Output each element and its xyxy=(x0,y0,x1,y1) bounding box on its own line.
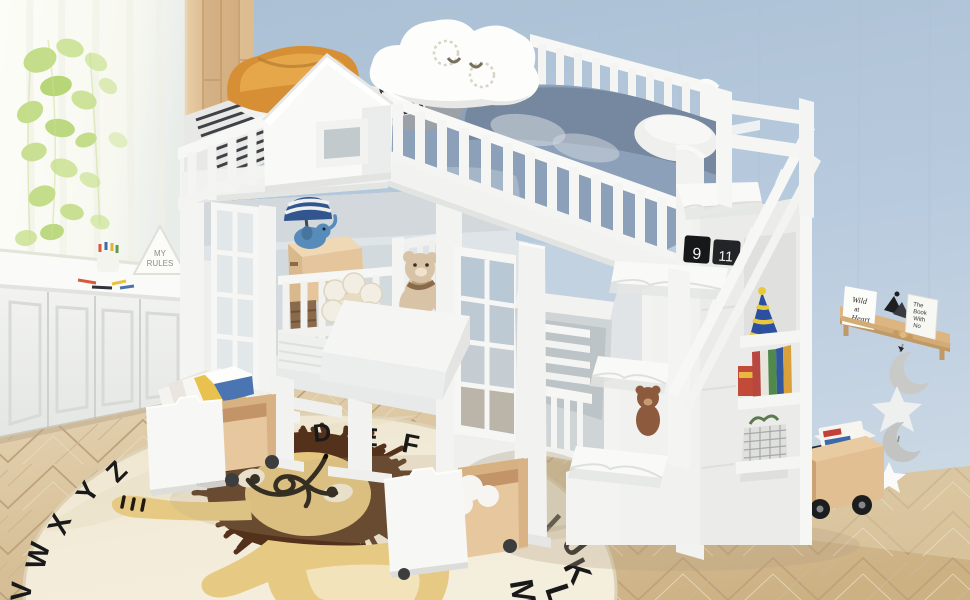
svg-text:No: No xyxy=(913,323,922,330)
svg-text:11: 11 xyxy=(718,248,734,265)
svg-text:V: V xyxy=(5,580,38,600)
svg-text:D: D xyxy=(312,418,333,448)
svg-text:MY: MY xyxy=(154,249,167,258)
svg-text:RULES: RULES xyxy=(147,259,174,268)
svg-text:9: 9 xyxy=(692,246,702,264)
